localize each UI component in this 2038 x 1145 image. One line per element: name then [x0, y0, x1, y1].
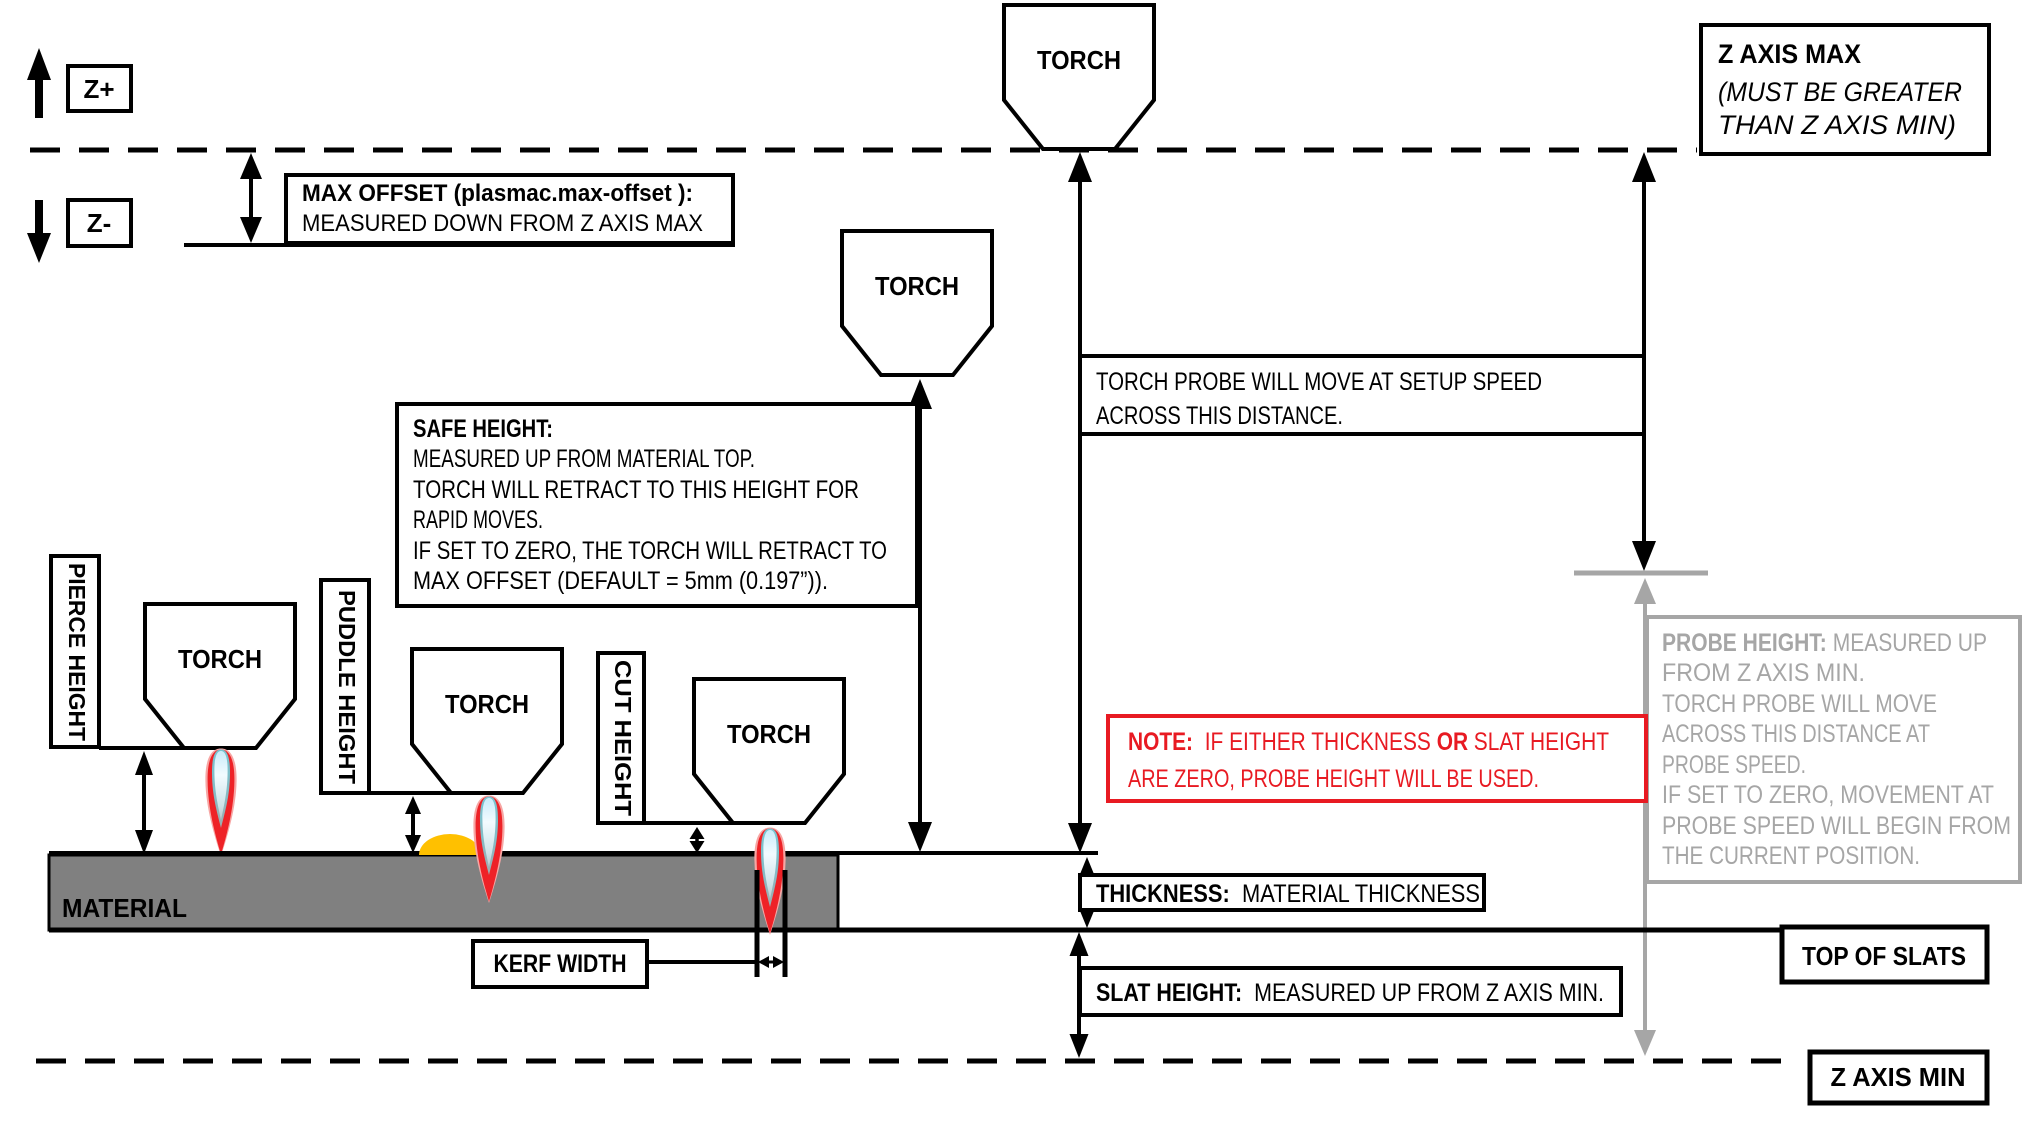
svg-text:OR: OR	[1437, 728, 1468, 756]
svg-text:TORCH: TORCH	[445, 689, 529, 719]
svg-text:SLAT HEIGHT: SLAT HEIGHT	[1474, 728, 1609, 756]
svg-text:PROBE SPEED.: PROBE SPEED.	[1662, 751, 1806, 779]
svg-text:TORCH: TORCH	[178, 644, 262, 674]
svg-text:MATERIAL: MATERIAL	[62, 893, 187, 923]
svg-text:SAFE HEIGHT:: SAFE HEIGHT:	[413, 415, 553, 443]
svg-text:MAX OFFSET (DEFAULT = 5mm (0.1: MAX OFFSET (DEFAULT = 5mm (0.197”)).	[413, 567, 828, 595]
svg-text:FROM Z AXIS MIN.: FROM Z AXIS MIN.	[1662, 659, 1865, 687]
svg-text:THE CURRENT POSITION.: THE CURRENT POSITION.	[1662, 842, 1920, 870]
svg-text:ARE ZERO, PROBE HEIGHT WILL BE: ARE ZERO, PROBE HEIGHT WILL BE USED.	[1128, 765, 1539, 793]
svg-text:MEASURED DOWN FROM Z AXIS MAX: MEASURED DOWN FROM Z AXIS MAX	[302, 210, 703, 237]
svg-text:IF SET TO ZERO, THE TORCH WILL: IF SET TO ZERO, THE TORCH WILL RETRACT T…	[413, 537, 887, 565]
svg-text:MATERIAL THICKNESS: MATERIAL THICKNESS	[1242, 880, 1480, 908]
svg-text:KERF WIDTH: KERF WIDTH	[494, 950, 627, 978]
svg-text:TORCH PROBE WILL MOVE: TORCH PROBE WILL MOVE	[1662, 690, 1937, 718]
svg-text:SLAT HEIGHT:: SLAT HEIGHT:	[1096, 979, 1242, 1007]
svg-text:PROBE SPEED WILL BEGIN FROM: PROBE SPEED WILL BEGIN FROM	[1662, 812, 2011, 840]
svg-text:THAN Z AXIS MIN): THAN Z AXIS MIN)	[1718, 110, 1956, 140]
svg-text:MEASURED UP FROM MATERIAL TOP.: MEASURED UP FROM MATERIAL TOP.	[413, 445, 755, 473]
svg-text:TORCH PROBE WILL MOVE AT SETUP: TORCH PROBE WILL MOVE AT SETUP SPEED	[1096, 368, 1542, 396]
svg-text:Z AXIS MAX: Z AXIS MAX	[1718, 39, 1861, 69]
svg-text:THICKNESS:: THICKNESS:	[1096, 880, 1230, 908]
svg-text:TORCH: TORCH	[1037, 45, 1121, 75]
svg-text:Z AXIS MIN: Z AXIS MIN	[1831, 1062, 1966, 1092]
svg-text:RAPID MOVES.: RAPID MOVES.	[413, 506, 543, 534]
svg-text:Z-: Z-	[87, 208, 112, 238]
svg-text:PIERCE HEIGHT: PIERCE HEIGHT	[64, 563, 90, 741]
svg-text:PROBE HEIGHT:: PROBE HEIGHT:	[1662, 629, 1827, 657]
svg-text:MEASURED UP: MEASURED UP	[1833, 629, 1987, 657]
svg-text:(MUST BE GREATER: (MUST BE GREATER	[1718, 77, 1962, 107]
svg-text:TORCH: TORCH	[875, 271, 959, 301]
svg-text:ACROSS THIS DISTANCE.: ACROSS THIS DISTANCE.	[1096, 402, 1343, 430]
svg-text:TORCH WILL RETRACT TO THIS HEI: TORCH WILL RETRACT TO THIS HEIGHT FOR	[413, 476, 859, 504]
svg-text:CUT HEIGHT: CUT HEIGHT	[610, 660, 636, 816]
svg-text:IF EITHER THICKNESS: IF EITHER THICKNESS	[1205, 728, 1431, 756]
svg-text:TORCH: TORCH	[727, 719, 811, 749]
svg-text:MEASURED UP FROM Z AXIS MIN.: MEASURED UP FROM Z AXIS MIN.	[1254, 979, 1604, 1007]
svg-text:PUDDLE HEIGHT: PUDDLE HEIGHT	[334, 590, 360, 784]
svg-text:TOP OF SLATS: TOP OF SLATS	[1802, 941, 1966, 971]
svg-text:NOTE:: NOTE:	[1128, 728, 1193, 756]
svg-text:MAX OFFSET (plasmac.max-offset: MAX OFFSET (plasmac.max-offset ):	[302, 180, 693, 207]
svg-text:IF SET TO ZERO, MOVEMENT AT: IF SET TO ZERO, MOVEMENT AT	[1662, 781, 1994, 809]
svg-text:Z+: Z+	[83, 74, 114, 104]
svg-text:ACROSS THIS DISTANCE AT: ACROSS THIS DISTANCE AT	[1662, 720, 1930, 748]
